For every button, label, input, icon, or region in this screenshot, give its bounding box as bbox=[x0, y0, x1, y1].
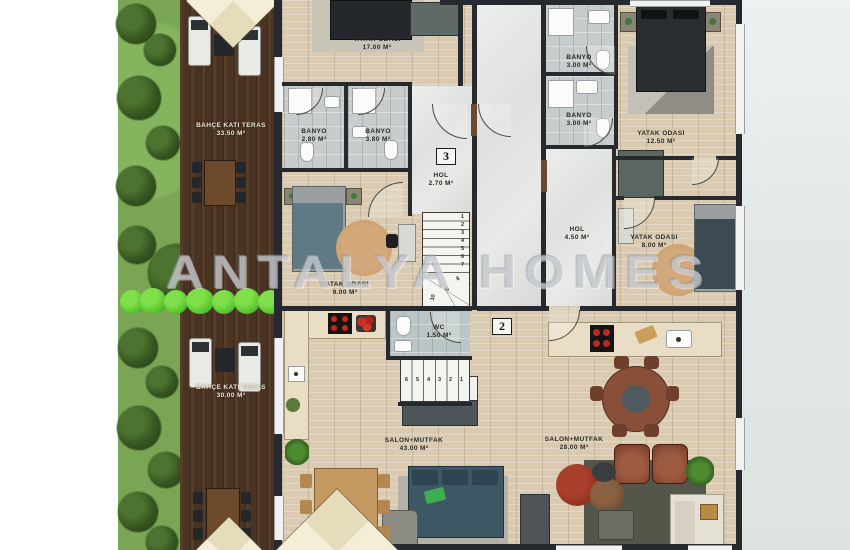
tree bbox=[116, 166, 156, 206]
room-label-banyo-300a: BANYO3.00 M² bbox=[548, 54, 610, 71]
burner bbox=[603, 329, 610, 336]
wall bbox=[654, 196, 742, 200]
shower-tray bbox=[548, 8, 574, 36]
wall bbox=[458, 0, 463, 86]
sink bbox=[576, 80, 598, 94]
wall bbox=[612, 149, 616, 306]
staircase-lower-run: 6 5 4 3 2 1 bbox=[400, 358, 470, 402]
wall bbox=[398, 402, 472, 406]
terrace-chair bbox=[241, 492, 251, 504]
sofa-white bbox=[670, 494, 724, 550]
wall bbox=[386, 356, 472, 360]
dining-chair bbox=[644, 356, 659, 369]
room-label-salon-28: SALON+MUTFAK28.00 M² bbox=[526, 436, 622, 453]
desk-chair bbox=[386, 234, 398, 248]
tree bbox=[118, 492, 158, 532]
terrace-chair bbox=[192, 177, 202, 188]
window bbox=[274, 496, 284, 540]
terrace-chair bbox=[193, 492, 203, 504]
floor-plan: BAHÇE KATI TERAS33.50 M² BAHÇE KATI TERA… bbox=[0, 0, 850, 550]
terrace-dining-table bbox=[204, 160, 236, 206]
stove bbox=[590, 325, 614, 352]
wall bbox=[614, 156, 694, 160]
dining-chair bbox=[378, 500, 390, 514]
terrace-chair bbox=[192, 192, 202, 203]
wall bbox=[716, 156, 742, 160]
burner bbox=[593, 329, 600, 336]
tree bbox=[146, 526, 178, 550]
nightstand bbox=[346, 188, 362, 205]
window bbox=[274, 338, 284, 434]
wall bbox=[541, 145, 618, 149]
background-right bbox=[742, 0, 850, 550]
room-label-wc: WC1.50 M² bbox=[414, 324, 464, 341]
tree bbox=[146, 366, 178, 398]
sofa-cushion bbox=[442, 470, 468, 485]
window bbox=[735, 418, 745, 470]
background-left bbox=[0, 0, 119, 550]
terrace-chair bbox=[241, 510, 251, 522]
room-label-yatak-125: YATAK ODASI12.50 M² bbox=[616, 130, 706, 147]
flower-vase bbox=[356, 315, 376, 332]
dining-chair bbox=[300, 500, 312, 514]
dining-chair bbox=[666, 386, 679, 401]
entry-door bbox=[471, 104, 477, 136]
nightstand bbox=[620, 12, 637, 32]
wall bbox=[344, 84, 348, 170]
dining-chair bbox=[614, 356, 629, 369]
tree bbox=[118, 328, 158, 368]
stair-corridor-floor bbox=[477, 0, 541, 308]
room-label-salon-43: SALON+MUTFAK43.00 M² bbox=[366, 437, 462, 454]
sofa-cushion bbox=[472, 470, 498, 485]
side-table-dark bbox=[592, 462, 616, 482]
dining-chair bbox=[590, 386, 603, 401]
tree bbox=[117, 406, 161, 450]
staircase-winder: 8 9 10 bbox=[422, 273, 470, 309]
desk bbox=[398, 224, 416, 262]
unit-badge-2: 2 bbox=[492, 318, 512, 335]
coffee-table-round bbox=[590, 478, 624, 512]
terrace-deck bbox=[180, 0, 280, 550]
leather-armchair bbox=[652, 444, 688, 484]
wall bbox=[472, 0, 477, 310]
lamp bbox=[625, 18, 632, 25]
wall bbox=[282, 306, 472, 311]
burner bbox=[331, 316, 337, 322]
sofa-cushion bbox=[675, 501, 695, 545]
burner bbox=[331, 325, 337, 331]
entry-door bbox=[541, 160, 547, 192]
plant bbox=[286, 398, 300, 412]
toilet bbox=[300, 142, 314, 162]
blanket bbox=[293, 203, 343, 269]
bush bbox=[212, 290, 236, 314]
sofa bbox=[408, 466, 504, 538]
side-table-wood bbox=[700, 504, 718, 520]
window bbox=[688, 545, 732, 550]
room-label-yatak-8: YATAK ODASI8.00 M² bbox=[616, 234, 692, 251]
side-table bbox=[215, 348, 235, 372]
pillow-green bbox=[424, 487, 447, 504]
tree bbox=[117, 76, 161, 120]
terrace-label-upper: BAHÇE KATI TERAS33.50 M² bbox=[184, 122, 278, 139]
burner bbox=[342, 316, 348, 322]
wall bbox=[614, 196, 624, 200]
bush bbox=[186, 288, 214, 314]
terrace-label-lower: BAHÇE KATI TERAS30.00 M² bbox=[184, 384, 278, 401]
sofa-cushion bbox=[412, 470, 438, 485]
pillow bbox=[673, 10, 699, 19]
shower-tray bbox=[548, 80, 574, 108]
kitchen-sink bbox=[288, 366, 305, 382]
room-label-banyo-380: BANYO3.80 M² bbox=[350, 128, 406, 145]
terrace-chair bbox=[193, 510, 203, 522]
terrace-chair bbox=[236, 192, 246, 203]
dining-chair bbox=[644, 424, 659, 437]
kitchen-sink bbox=[666, 330, 692, 348]
room-label-banyo-280: BANYO2.80 M² bbox=[286, 128, 342, 145]
lamp bbox=[709, 18, 716, 25]
wall bbox=[386, 310, 390, 360]
tree bbox=[144, 34, 176, 66]
burner bbox=[342, 325, 348, 331]
wall bbox=[477, 306, 549, 311]
blanket bbox=[695, 219, 737, 289]
window bbox=[735, 24, 745, 134]
round-dining-table bbox=[602, 366, 670, 432]
sun-lounger bbox=[189, 338, 212, 388]
window bbox=[735, 206, 745, 290]
bush bbox=[140, 288, 166, 314]
room-label-hol-450: HOL4.50 M² bbox=[548, 226, 606, 243]
sink bbox=[588, 10, 610, 24]
terrace-chair bbox=[193, 528, 203, 540]
toilet bbox=[396, 316, 411, 336]
round-rug bbox=[336, 220, 392, 276]
wall bbox=[541, 0, 546, 310]
wall bbox=[408, 84, 412, 216]
room-label-yatak-9: YATAK ODASI9.00 M² bbox=[300, 281, 390, 298]
sink bbox=[324, 96, 340, 108]
staircase-upper-run: 1 2 3 4 5 6 7 bbox=[422, 212, 470, 274]
bush bbox=[164, 290, 188, 314]
tree bbox=[148, 452, 184, 488]
sink bbox=[394, 340, 412, 352]
pillow bbox=[641, 10, 667, 19]
nightstand bbox=[704, 12, 721, 32]
burner bbox=[593, 340, 600, 347]
room-label-hol-270: HOL2.70 M² bbox=[414, 172, 468, 189]
sun-lounger bbox=[188, 16, 211, 66]
bed-double bbox=[330, 0, 412, 40]
room-label-yatak-17: YATAK ODASI17.00 M² bbox=[332, 36, 422, 53]
terrace-chair bbox=[192, 162, 202, 173]
tree bbox=[146, 126, 180, 160]
plant-boxes bbox=[598, 510, 634, 540]
tv-stand bbox=[520, 494, 550, 550]
drain bbox=[676, 337, 681, 342]
wardrobe bbox=[410, 2, 460, 36]
bush bbox=[234, 288, 260, 314]
plant bbox=[686, 456, 714, 486]
window bbox=[630, 0, 710, 7]
plant bbox=[285, 438, 309, 466]
lamp bbox=[351, 193, 357, 199]
tree bbox=[118, 226, 156, 264]
bed-single bbox=[694, 204, 740, 292]
dining-chair bbox=[300, 474, 312, 488]
dining-chair bbox=[378, 474, 390, 488]
terrace-chair bbox=[236, 177, 246, 188]
bed-double bbox=[636, 6, 706, 92]
window bbox=[556, 545, 622, 550]
unit-badge-3: 3 bbox=[436, 148, 456, 165]
room-label-banyo-300b: BANYO3.00 M² bbox=[548, 112, 610, 129]
drain bbox=[294, 372, 298, 376]
terrace-chair bbox=[236, 162, 246, 173]
burner bbox=[603, 340, 610, 347]
wall bbox=[580, 306, 742, 311]
stove bbox=[328, 313, 352, 334]
